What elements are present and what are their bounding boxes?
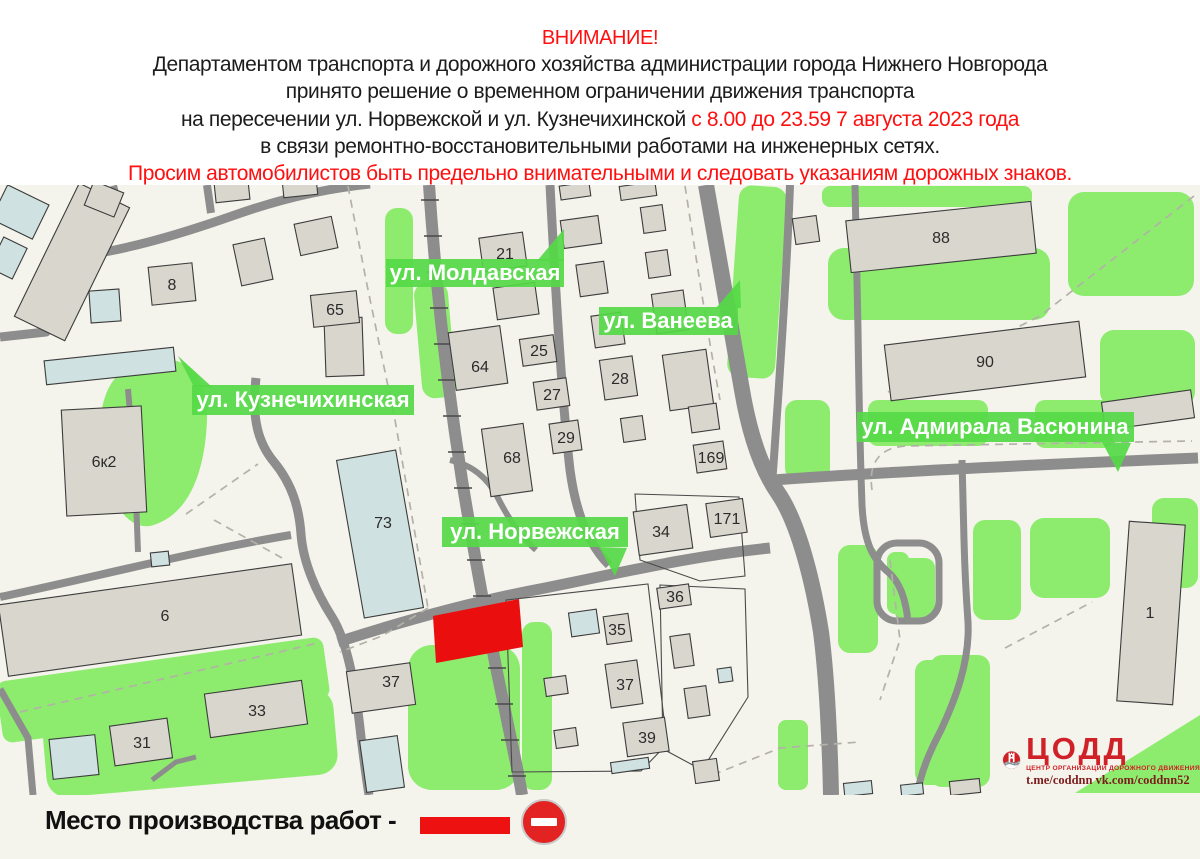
attention-title: ВНИМАНИЕ!: [0, 27, 1200, 50]
notice-line-4: в связи ремонтно-восстановительными рабо…: [0, 135, 1200, 159]
building-number: 169: [698, 450, 725, 467]
notice-line-3-location: на пересечении ул. Норвежской и ул. Кузн…: [181, 108, 686, 131]
map-canvas: 8 65 21 88 90 64 25 27 28 29 68 169 171 …: [0, 185, 1200, 795]
street-label-text: ул. Адмирала Васюнина: [861, 414, 1129, 439]
codd-subtitle: ЦЕНТР ОРГАНИЗАЦИИ ДОРОЖНОГО ДВИЖЕНИЯ: [1026, 766, 1200, 773]
building-number: 39: [638, 730, 656, 747]
city-map: 8 65 21 88 90 64 25 27 28 29 68 169 171 …: [0, 185, 1200, 795]
no-entry-bar: [531, 818, 557, 826]
street-label-text: ул. Ванеева: [603, 308, 733, 333]
no-entry-sign-icon: [521, 799, 567, 845]
building-number: 8: [168, 277, 177, 294]
building-number: 33: [248, 703, 266, 720]
notice-line-5: Просим автомобилистов быть предельно вни…: [0, 162, 1200, 186]
building-number: 73: [374, 515, 392, 532]
building-number: 25: [530, 343, 548, 360]
building-number: 36: [666, 589, 684, 606]
building-number: 37: [616, 677, 634, 694]
building-number: 28: [611, 371, 629, 388]
building-number: 6к2: [92, 454, 117, 471]
traffic-notice-poster: ВНИМАНИЕ! Департаментом транспорта и дор…: [0, 0, 1200, 859]
codd-links: t.me/coddnn vk.com/coddnn52: [1026, 774, 1200, 787]
street-label-text: ул. Молдавская: [390, 260, 561, 285]
building: [346, 663, 415, 713]
notice-header: ВНИМАНИЕ! Департаментом транспорта и дор…: [0, 0, 1200, 185]
building-number: 88: [932, 230, 950, 247]
map-legend: Место производства работ -: [0, 795, 1200, 859]
building-number: 171: [714, 511, 741, 528]
notice-line-3-dates: с 8.00 до 23.59 7 августа 2023 года: [691, 108, 1019, 131]
building-number: 31: [133, 735, 151, 752]
codd-emblem-icon: [1002, 732, 1021, 788]
building-number: 34: [652, 524, 670, 541]
building-number: 1: [1146, 605, 1155, 622]
work-zone-sample: [420, 817, 510, 834]
notice-line-3: на пересечении ул. Норвежской и ул. Кузн…: [0, 108, 1200, 132]
street-label-text: ул. Кузнечихинская: [196, 387, 409, 412]
building-number: 37: [382, 674, 400, 691]
building-number: 64: [471, 359, 489, 376]
codd-acronym: ЦОДД: [1026, 733, 1200, 764]
street-label-text: ул. Норвежская: [450, 519, 620, 544]
building-number: 68: [503, 450, 521, 467]
building: [448, 326, 508, 391]
building-number: 90: [976, 354, 994, 371]
notice-line-1: Департаментом транспорта и дорожного хоз…: [0, 53, 1200, 77]
notice-line-2: принято решение о временном ограничении …: [0, 80, 1200, 104]
building-number: 29: [557, 430, 575, 447]
building-number: 6: [161, 608, 170, 625]
codd-logo: ЦОДД ЦЕНТР ОРГАНИЗАЦИИ ДОРОЖНОГО ДВИЖЕНИ…: [1002, 731, 1200, 789]
building-number: 27: [543, 387, 561, 404]
building-number: 35: [608, 622, 626, 639]
legend-label: Место производства работ -: [45, 805, 396, 836]
building-number: 65: [326, 302, 344, 319]
